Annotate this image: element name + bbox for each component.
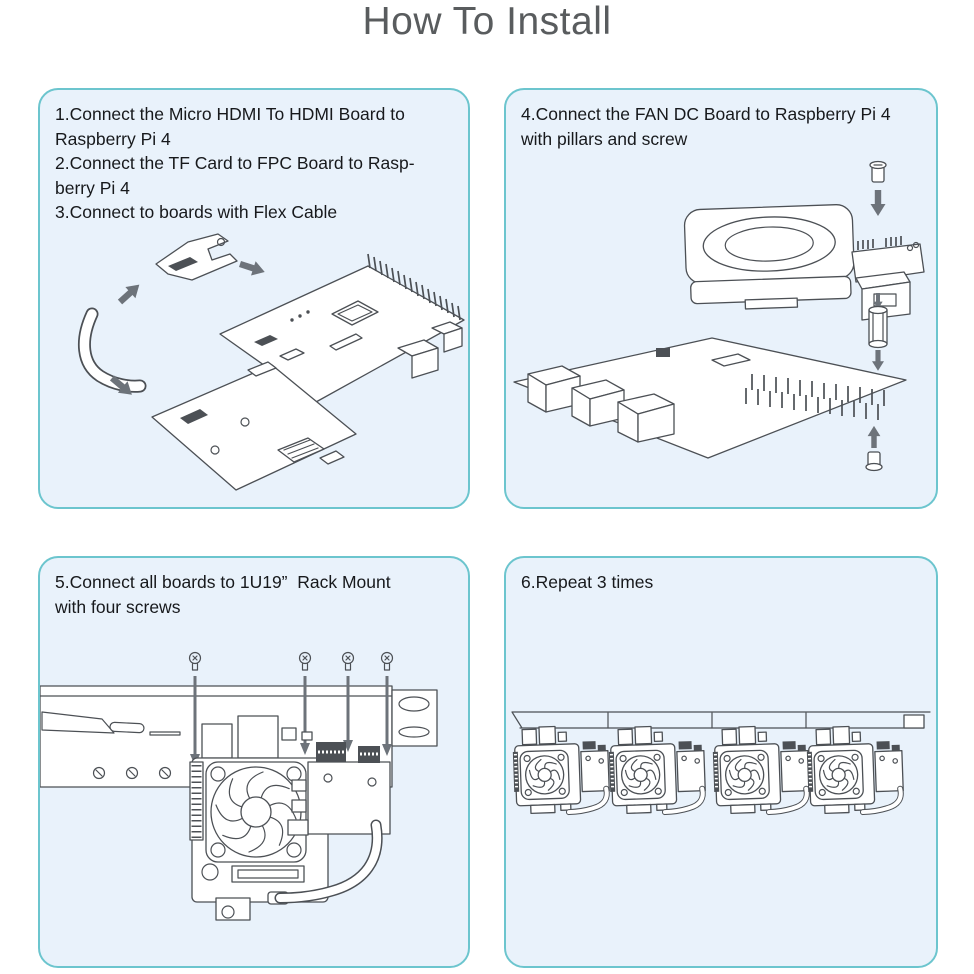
assembly-unit-drawing (608, 725, 706, 814)
instruction-line: 6.Repeat 3 times (521, 570, 921, 595)
instructions-step-4: 4.Connect the FAN DC Board to Raspberry … (506, 90, 936, 151)
page-title: How To Install (0, 0, 974, 44)
instruction-line: with pillars and screw (521, 127, 921, 152)
rack-bar-drawing (512, 712, 930, 728)
instructions-steps-1-3: 1.Connect the Micro HDMI To HDMI Board t… (40, 90, 468, 225)
raspberry-pi4-drawing (514, 338, 906, 458)
assembly-unit-drawing (712, 725, 810, 814)
fan-drawing (206, 762, 306, 862)
panel-step-4: 4.Connect the FAN DC Board to Raspberry … (504, 88, 938, 509)
screw-drawing (382, 653, 393, 671)
assembly-unit-drawing (806, 725, 904, 814)
arrow-icon (872, 350, 884, 371)
panel-step-6: 6.Repeat 3 times (504, 556, 938, 968)
flex-cable-drawing (84, 314, 140, 386)
fan-assembly-drawing (684, 204, 855, 311)
micro-hdmi-board-drawing (156, 234, 237, 280)
panel-step-5: 5.Connect all boards to 1U19” Rack Mount… (38, 556, 470, 968)
screw-drawing (190, 653, 201, 671)
diagram-rack-mount-install (40, 620, 472, 964)
instruction-line: 1.Connect the Micro HDMI To HDMI Board t… (55, 102, 453, 127)
instruction-line: 5.Connect all boards to 1U19” Rack Mount (55, 570, 453, 595)
panel-steps-1-3: 1.Connect the Micro HDMI To HDMI Board t… (38, 88, 470, 509)
assembly-unit-drawing (512, 725, 610, 814)
diagram-four-assemblies-on-rack (506, 616, 940, 962)
instruction-line: 4.Connect the FAN DC Board to Raspberry … (521, 102, 921, 127)
instruction-line: Raspberry Pi 4 (55, 127, 453, 152)
instruction-line: 3.Connect to boards with Flex Cable (55, 200, 453, 225)
diagram-exploded-boards (40, 222, 472, 506)
pillar-drawing (869, 307, 887, 348)
screw-drawing (343, 653, 354, 671)
instructions-step-6: 6.Repeat 3 times (506, 558, 936, 595)
arrow-icon (115, 279, 144, 308)
instruction-line: 2.Connect the TF Card to FPC Board to Ra… (55, 151, 453, 176)
screw-drawing (870, 162, 886, 183)
screw-drawing (300, 653, 311, 671)
arrow-icon (238, 257, 267, 279)
diagram-fan-dc-board-install (506, 152, 940, 504)
instructions-step-5: 5.Connect all boards to 1U19” Rack Mount… (40, 558, 468, 619)
screw-drawing (866, 452, 882, 471)
instruction-line: with four screws (55, 595, 453, 620)
how-to-install-page: How To Install 1.Connect the Micro HDMI … (0, 0, 974, 974)
instruction-line: berry Pi 4 (55, 176, 453, 201)
arrow-icon (871, 190, 886, 216)
arrow-icon (868, 426, 881, 448)
fan-dc-board-drawing (852, 236, 924, 320)
